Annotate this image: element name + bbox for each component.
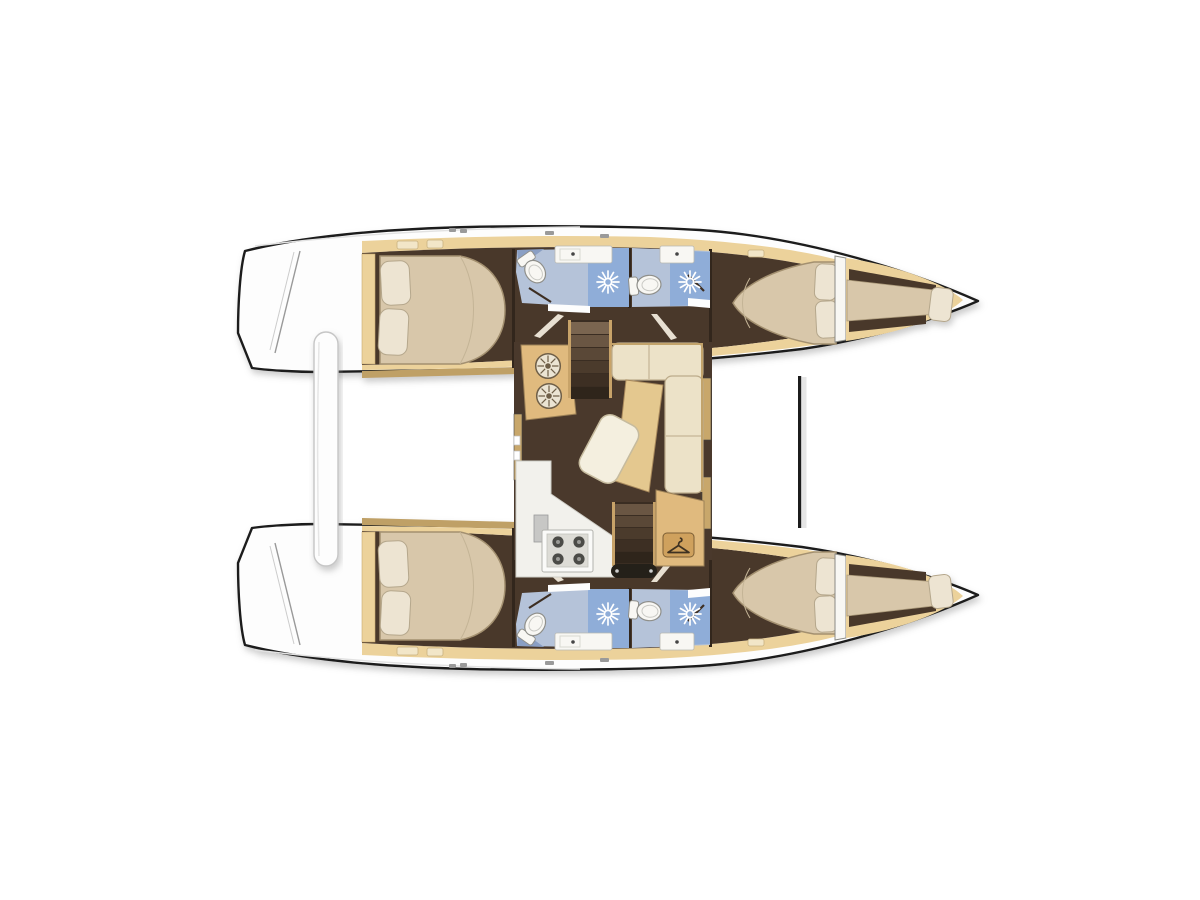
burner-center (577, 540, 581, 544)
stair-tread (571, 322, 609, 334)
stair-rail (612, 502, 615, 566)
stair-tread (615, 504, 653, 515)
stair-tread (571, 387, 609, 399)
stair-tread (615, 528, 653, 539)
wardrobe (656, 490, 704, 566)
forward-beam-shadow (802, 377, 807, 528)
stair-tread (615, 516, 653, 527)
stairs-starboard-hull (612, 502, 656, 566)
burner-center (556, 540, 560, 544)
stair-tread (615, 540, 653, 551)
forward-beam (798, 376, 801, 528)
stairs-port-hull (568, 320, 612, 399)
threshold-end-cap (615, 569, 619, 573)
stair-tread (571, 335, 609, 347)
screenshot-canvas (0, 0, 1200, 900)
stair-rail (568, 320, 571, 398)
stair-tread (571, 374, 609, 386)
saloon (514, 314, 712, 582)
sofa-front-bench (612, 343, 703, 380)
stair-tread (615, 552, 653, 563)
catamaran-floor-plan (0, 0, 1200, 900)
galley-round-sink (537, 384, 562, 409)
threshold-end-cap (649, 569, 653, 573)
stove-four-burners (542, 530, 593, 572)
galley-round-sink (536, 354, 561, 379)
sofa-side-bench (665, 376, 703, 493)
stair-tread (571, 348, 609, 360)
burner-center (577, 557, 581, 561)
cabinet-handle (514, 451, 520, 460)
burner-center (556, 557, 560, 561)
stair-tread (571, 361, 609, 373)
cabinet-handle (514, 436, 520, 445)
